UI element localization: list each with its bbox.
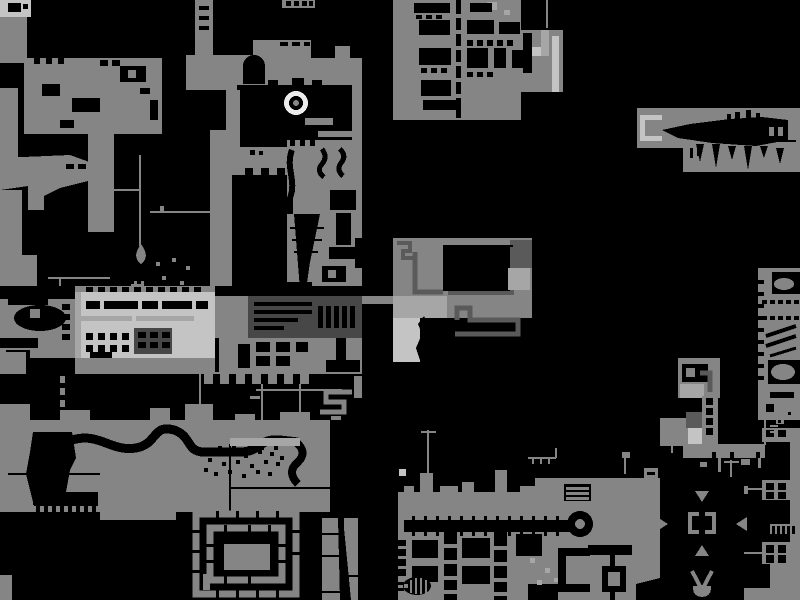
chevron-icon [692,571,712,597]
spiral-structure [192,511,301,600]
left-corner-block [0,0,31,63]
bottom-center-terrain [398,468,660,600]
ring-marker-icon [284,91,308,115]
game-map-screen [0,0,800,600]
reticle-icon [657,459,750,556]
donut-marker-icon [567,511,593,537]
ship-band [637,108,800,172]
meander-glyph [320,392,352,420]
droplet-icon [136,244,146,264]
center-block [393,238,532,362]
game-map-canvas[interactable] [0,0,800,600]
right-strip-upper [758,268,800,420]
right-slab-tunnels [286,140,399,304]
rooms-block [393,0,563,120]
left-terrain [0,0,232,303]
bottom-columns [322,518,358,600]
